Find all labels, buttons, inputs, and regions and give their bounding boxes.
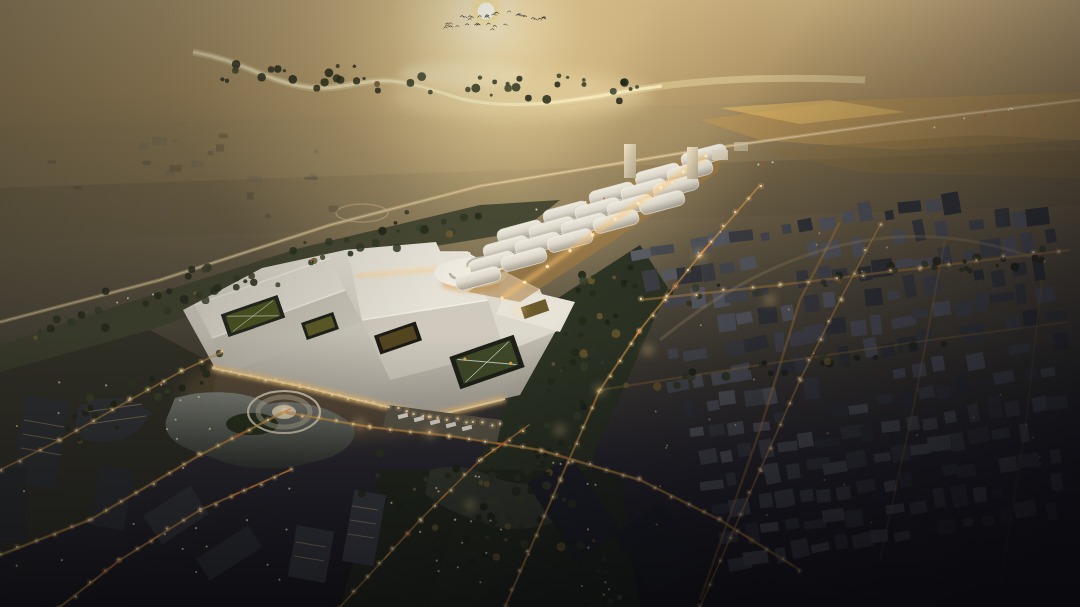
vignette-bottom: [0, 0, 1080, 607]
rendering-canvas: [0, 0, 1080, 607]
scene-svg: [0, 0, 1080, 607]
